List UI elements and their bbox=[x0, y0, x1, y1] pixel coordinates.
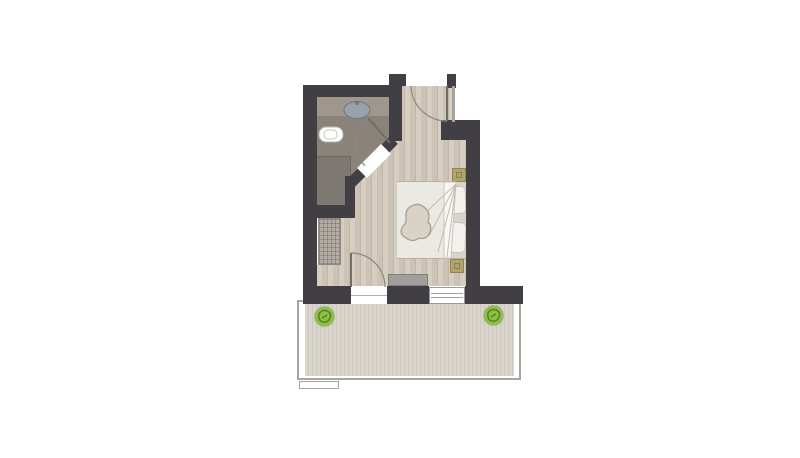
plant-right-icon bbox=[484, 306, 503, 325]
glass-strip bbox=[452, 86, 455, 122]
nightstand-top bbox=[452, 168, 466, 182]
floor-plan-canvas bbox=[0, 0, 800, 458]
wall-bottom-middle bbox=[387, 286, 429, 304]
nightstand-bottom bbox=[450, 259, 464, 273]
balcony-deck bbox=[305, 304, 514, 376]
wall-bathroom-right bbox=[389, 84, 402, 141]
wall-bathroom-top bbox=[303, 85, 398, 97]
threshold-sill bbox=[351, 295, 387, 296]
wall-bottom-right bbox=[465, 286, 523, 304]
vanity-counter bbox=[317, 96, 389, 116]
pillow-top bbox=[449, 186, 467, 215]
built-in-wardrobe bbox=[318, 218, 341, 265]
nightstand-bottom-inner bbox=[454, 263, 460, 269]
pillow-bottom bbox=[448, 222, 466, 254]
wall-bottom-left bbox=[303, 286, 351, 304]
wall-left bbox=[303, 85, 317, 304]
window bbox=[429, 287, 465, 304]
wall-bathroom-corner bbox=[345, 176, 355, 208]
window-frame-bar bbox=[431, 293, 463, 294]
bench bbox=[388, 274, 428, 286]
nightstand-top-inner bbox=[456, 172, 462, 178]
window-frame-bar bbox=[431, 297, 463, 298]
balcony-step-marker bbox=[299, 381, 339, 389]
plant-left-icon bbox=[315, 307, 334, 326]
wall-right bbox=[466, 120, 480, 304]
balcony-door-threshold bbox=[351, 288, 387, 304]
